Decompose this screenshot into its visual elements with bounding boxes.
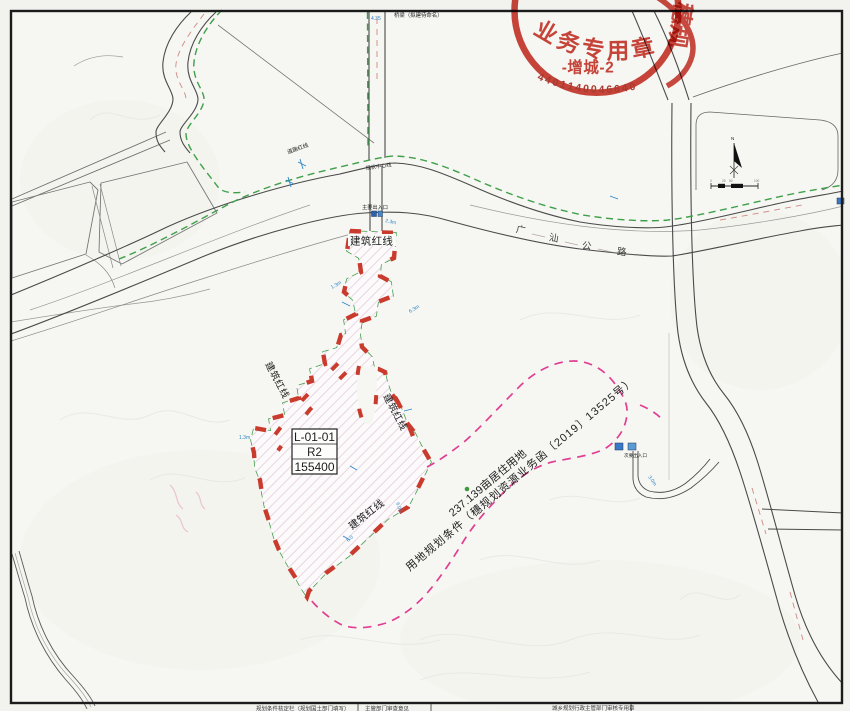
svg-text:0: 0	[590, 83, 597, 95]
svg-text:主要出入口: 主要出入口	[362, 203, 388, 211]
svg-text:N: N	[731, 136, 734, 141]
svg-text:次要出入口: 次要出入口	[624, 452, 647, 459]
svg-text:0: 0	[710, 179, 712, 183]
svg-text:建筑红线: 建筑红线	[350, 235, 393, 248]
svg-text:-增城-2: -增城-2	[562, 58, 614, 77]
svg-text:汕: 汕	[548, 232, 559, 244]
svg-text:155400: 155400	[295, 462, 335, 474]
svg-text:50: 50	[729, 179, 733, 183]
svg-text:4: 4	[599, 84, 605, 96]
svg-text:路: 路	[616, 246, 627, 259]
svg-text:25: 25	[722, 179, 726, 183]
svg-text:L-01-01: L-01-01	[294, 432, 335, 444]
svg-text:1.3m: 1.3m	[239, 435, 250, 441]
svg-text:4.35: 4.35	[371, 16, 381, 22]
svg-text:6: 6	[606, 84, 612, 96]
svg-text:城乡规划行政主管部门审核专用章: 城乡规划行政主管部门审核专用章	[552, 704, 635, 711]
svg-text:100: 100	[754, 179, 760, 183]
svg-text:公: 公	[581, 241, 592, 253]
svg-text:6: 6	[614, 83, 621, 95]
svg-text:R2: R2	[307, 447, 322, 459]
